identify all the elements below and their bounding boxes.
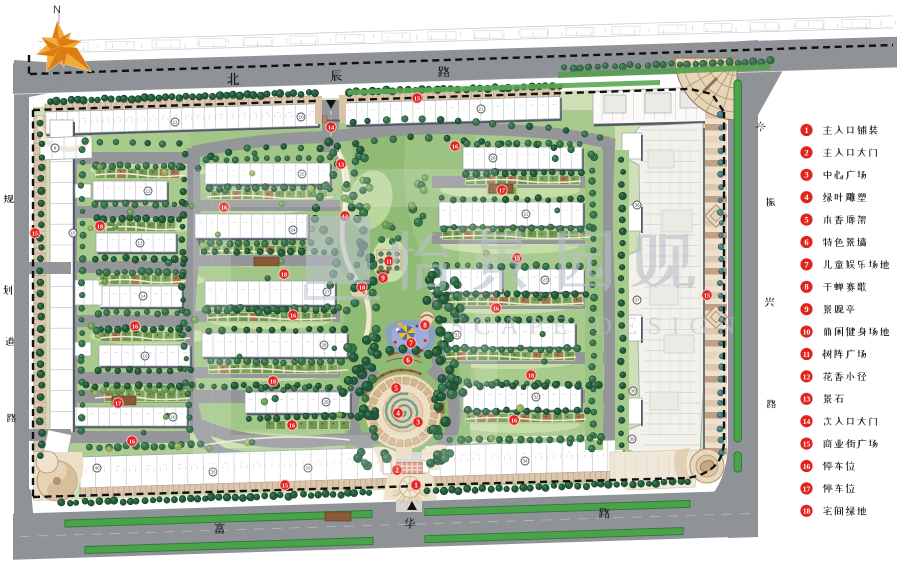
svg-text:32: 32 <box>533 395 539 400</box>
svg-text:13: 13 <box>137 241 143 246</box>
svg-text:13: 13 <box>338 161 344 168</box>
svg-text:18: 18 <box>803 507 811 516</box>
svg-text:12: 12 <box>145 189 151 194</box>
svg-text:18: 18 <box>270 378 276 385</box>
svg-text:8: 8 <box>423 321 427 329</box>
svg-text:11: 11 <box>173 120 178 125</box>
svg-text:17: 17 <box>803 484 811 493</box>
svg-text:10: 10 <box>803 328 811 337</box>
svg-text:23: 23 <box>542 278 548 283</box>
svg-text:22: 22 <box>523 212 529 217</box>
svg-text:16: 16 <box>511 417 517 424</box>
svg-text:18: 18 <box>528 372 534 379</box>
svg-text:15: 15 <box>32 230 38 237</box>
svg-text:18: 18 <box>97 223 103 230</box>
svg-text:5: 5 <box>394 384 398 392</box>
svg-text:6: 6 <box>804 237 809 247</box>
svg-text:15: 15 <box>803 440 811 449</box>
svg-text:13: 13 <box>803 395 811 404</box>
svg-text:15: 15 <box>414 95 420 102</box>
svg-text:14: 14 <box>328 124 334 131</box>
svg-text:16: 16 <box>452 143 458 150</box>
svg-text:15: 15 <box>142 354 148 359</box>
svg-text:21: 21 <box>478 107 484 112</box>
svg-text:26: 26 <box>490 156 496 161</box>
svg-text:5: 5 <box>804 215 808 225</box>
svg-text:17: 17 <box>115 400 121 407</box>
svg-text:1: 1 <box>414 481 418 489</box>
svg-text:N: N <box>53 4 61 16</box>
svg-text:38: 38 <box>630 389 636 394</box>
svg-text:3: 3 <box>416 418 420 426</box>
svg-text:11: 11 <box>803 350 810 359</box>
svg-text:16: 16 <box>132 323 138 330</box>
svg-text:29: 29 <box>323 400 329 405</box>
svg-text:36: 36 <box>634 203 640 208</box>
svg-text:16: 16 <box>129 438 135 445</box>
svg-text:16: 16 <box>803 462 811 471</box>
svg-text:40: 40 <box>94 466 100 471</box>
svg-text:17: 17 <box>499 187 505 194</box>
svg-text:2: 2 <box>804 147 808 157</box>
svg-text:37: 37 <box>634 298 640 303</box>
svg-text:39: 39 <box>629 437 635 442</box>
svg-text:9: 9 <box>54 146 57 151</box>
svg-text:4: 4 <box>804 192 809 202</box>
svg-text:10: 10 <box>298 115 304 120</box>
svg-text:18: 18 <box>281 271 287 278</box>
svg-text:16: 16 <box>289 422 295 429</box>
svg-text:9: 9 <box>804 304 808 314</box>
svg-text:24: 24 <box>290 228 296 233</box>
svg-text:27: 27 <box>324 290 330 295</box>
svg-text:9: 9 <box>381 274 385 282</box>
svg-text:6: 6 <box>406 356 410 364</box>
svg-text:15: 15 <box>704 292 710 299</box>
svg-text:SCAPE DESIGN: SCAPE DESIGN <box>450 313 746 340</box>
svg-text:16: 16 <box>170 415 176 420</box>
svg-text:14: 14 <box>140 294 146 299</box>
svg-text:28: 28 <box>321 343 327 348</box>
svg-text:16: 16 <box>290 312 296 319</box>
svg-text:7: 7 <box>409 339 413 347</box>
svg-text:34: 34 <box>522 459 528 464</box>
svg-text:15: 15 <box>70 231 76 236</box>
svg-text:3: 3 <box>804 170 808 180</box>
svg-text:4: 4 <box>396 409 400 417</box>
svg-text:14: 14 <box>803 417 811 426</box>
svg-text:10: 10 <box>359 284 365 291</box>
svg-text:15: 15 <box>282 482 288 489</box>
svg-text:12: 12 <box>803 372 811 381</box>
svg-text:1: 1 <box>804 125 808 135</box>
svg-text:7: 7 <box>804 259 809 269</box>
svg-text:11: 11 <box>386 258 392 265</box>
svg-text:8: 8 <box>804 282 809 292</box>
